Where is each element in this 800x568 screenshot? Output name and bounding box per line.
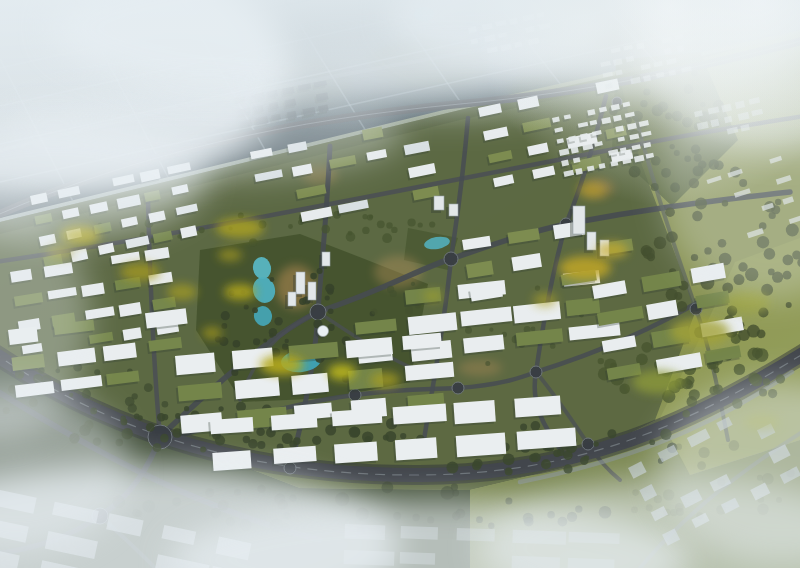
golden-canopy	[423, 290, 443, 302]
tower	[449, 204, 458, 216]
city-render-canvas	[0, 0, 800, 568]
golden-canopy	[632, 370, 684, 394]
building	[291, 373, 329, 395]
building	[273, 446, 316, 464]
golden-canopy	[328, 364, 356, 380]
golden-canopy	[559, 256, 611, 280]
tower	[308, 282, 316, 300]
golden-canopy	[218, 249, 242, 261]
building	[334, 441, 378, 463]
white-dome	[318, 326, 329, 337]
roundabout	[452, 382, 464, 394]
golden-canopy	[202, 327, 222, 339]
building	[212, 450, 251, 471]
tower	[288, 292, 296, 306]
tower	[573, 206, 585, 234]
tower	[296, 272, 305, 294]
golden-canopy	[167, 284, 197, 300]
roundabout	[582, 438, 594, 450]
golden-canopy	[370, 372, 400, 388]
tower	[322, 252, 330, 266]
building	[453, 400, 495, 424]
roundabout	[444, 252, 458, 266]
golden-canopy	[670, 318, 730, 346]
building	[234, 377, 280, 399]
golden-canopy	[260, 355, 304, 375]
roundabout	[530, 366, 542, 378]
building	[456, 432, 507, 457]
golden-canopy	[533, 293, 557, 307]
golden-canopy	[224, 284, 256, 300]
building	[514, 396, 561, 418]
building	[175, 353, 216, 376]
top-mist-band	[0, 0, 800, 130]
roundabout	[310, 304, 326, 320]
tower	[434, 196, 444, 210]
golden-canopy	[120, 263, 160, 281]
masterplan-aerial-view	[0, 0, 800, 568]
golden-canopy	[596, 242, 628, 258]
building	[395, 437, 438, 460]
building	[393, 404, 447, 425]
building	[210, 417, 254, 434]
tower	[587, 232, 596, 250]
golden-canopy	[216, 218, 264, 238]
